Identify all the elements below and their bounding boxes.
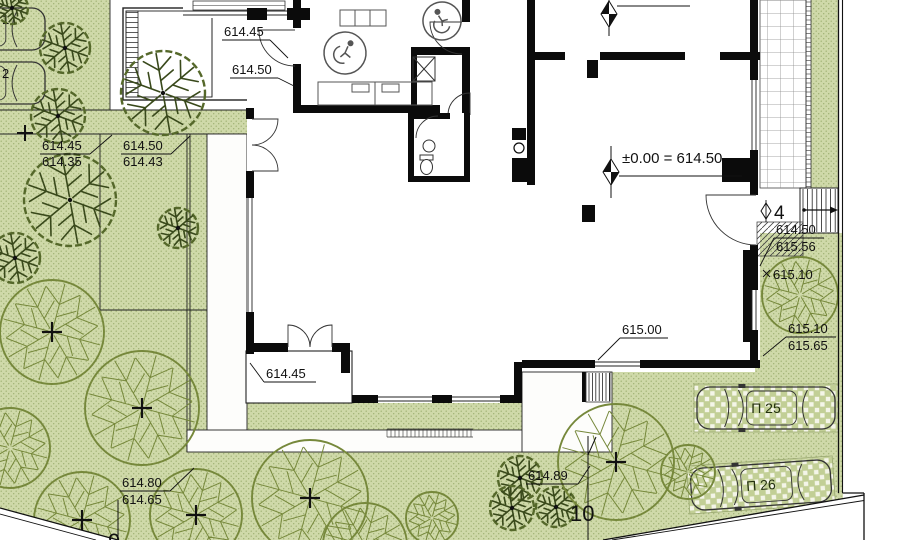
survey-point-10: 10	[570, 501, 594, 526]
parking-stall-label: П 25	[751, 400, 781, 416]
frac-right1-bot: 615.56	[776, 239, 816, 254]
parking-stall-label: П 26	[746, 476, 777, 494]
frac-left2-top: 614.50	[123, 138, 163, 153]
west-walkway	[207, 134, 247, 452]
pier	[722, 158, 750, 182]
frac-right2-top: 615.10	[788, 321, 828, 336]
spot-right-label: 615.10	[773, 267, 813, 282]
frac-left2-bot: 614.43	[123, 154, 163, 169]
pool-lower-label: 614.50	[232, 62, 272, 77]
parked-car-label: 2	[2, 66, 9, 81]
east-terrace	[760, 0, 811, 188]
parking-stall: П 25	[694, 384, 838, 432]
survey-point-9: 9	[108, 529, 120, 540]
column	[582, 205, 595, 222]
site-plan: П 25П 26 12 ±0.00 = 614.50 61	[0, 0, 899, 540]
datum-label: ±0.00 = 614.50	[622, 150, 722, 167]
terrace-level-label: 615.00	[622, 322, 662, 337]
kitchen-fixture	[512, 128, 526, 140]
spot-bottom-label: 614.89	[528, 468, 568, 483]
frac-right2-bot: 615.65	[788, 338, 828, 353]
stairs-count-label: 4	[774, 203, 785, 224]
porch-level-label: 614.45	[266, 366, 306, 381]
frac-left1-bot: 614.35	[42, 154, 82, 169]
pool-upper-label: 614.45	[224, 24, 264, 39]
washbasin	[423, 140, 435, 152]
kitchen-fixture	[512, 158, 528, 182]
frac-bottom-bot: 614.65	[122, 492, 162, 507]
south-steps	[582, 372, 610, 402]
site-plan-canvas: П 25П 26 12 ±0.00 = 614.50 61	[0, 0, 899, 540]
frac-bottom-top: 614.80	[122, 475, 162, 490]
frac-right1-top: 614.50	[776, 222, 816, 237]
frac-left1-top: 614.45	[42, 138, 82, 153]
building-floor	[247, 0, 760, 403]
toilet	[420, 155, 433, 175]
